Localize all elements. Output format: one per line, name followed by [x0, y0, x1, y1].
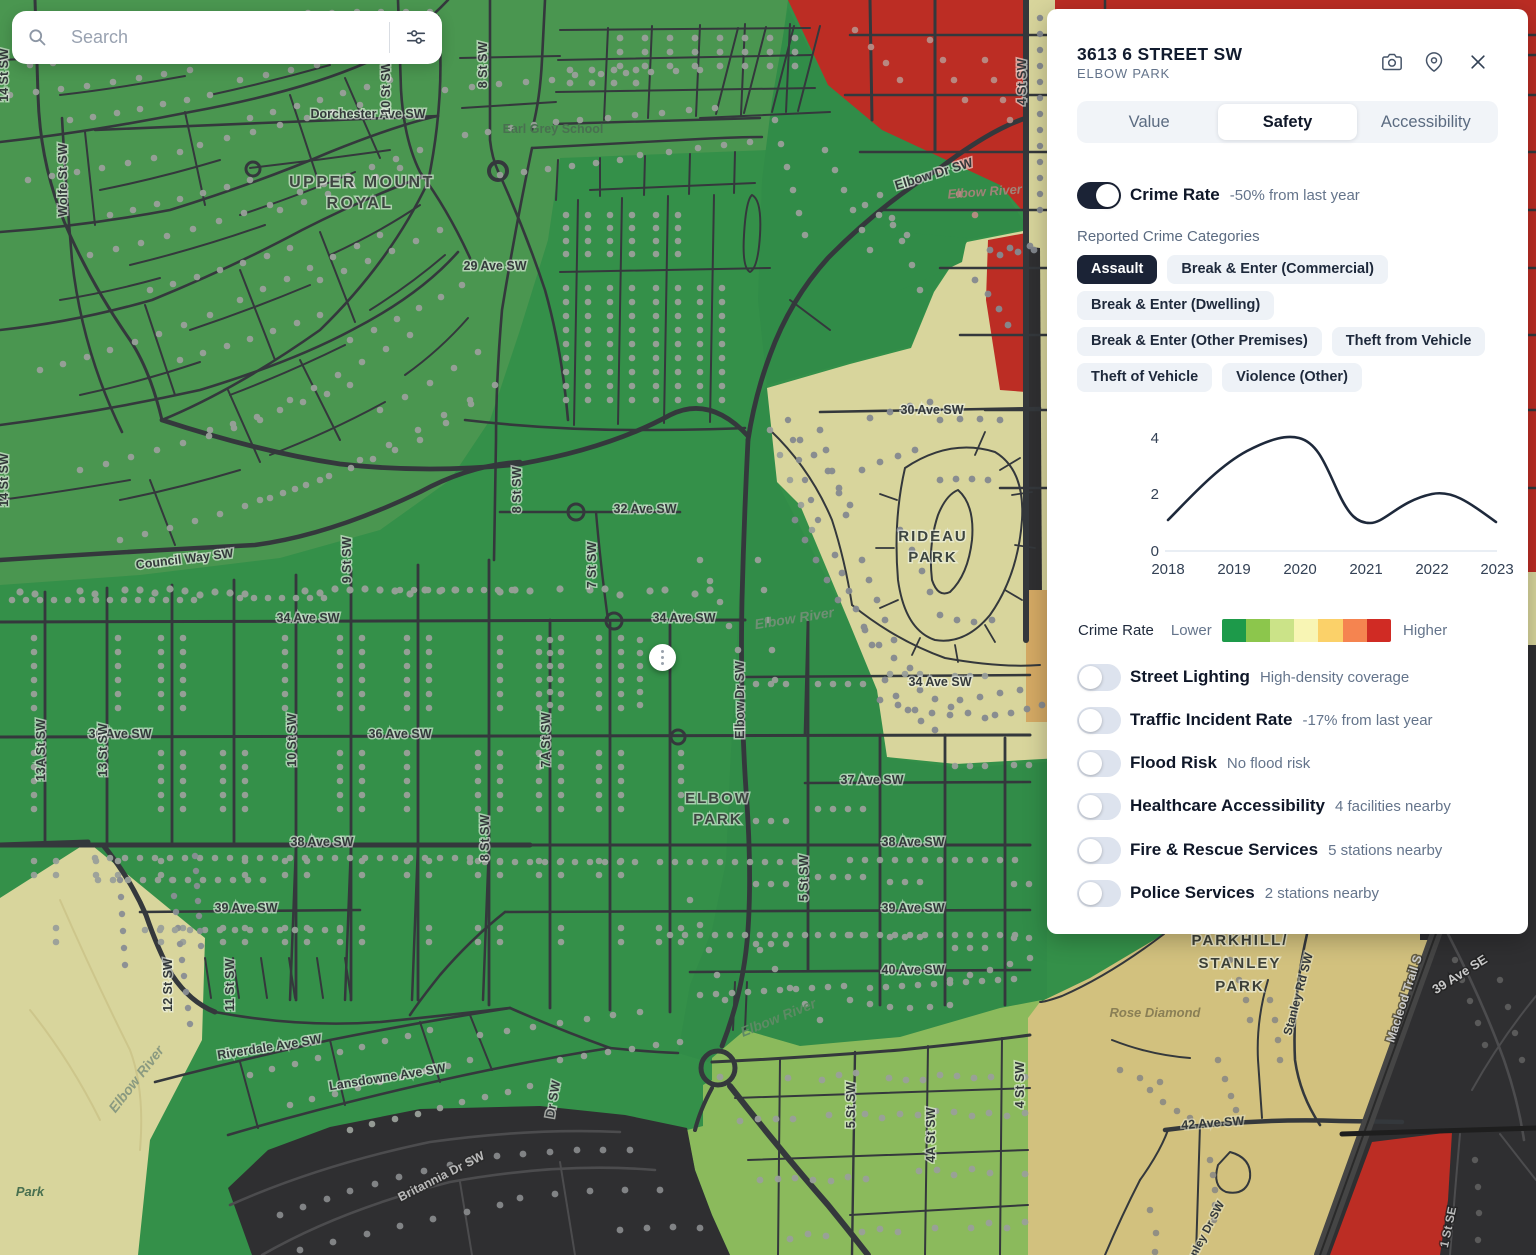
- svg-text:7A St SW: 7A St SW: [539, 712, 553, 767]
- svg-text:4: 4: [1151, 430, 1159, 447]
- svg-text:Rose Diamond: Rose Diamond: [1109, 1005, 1201, 1020]
- svg-text:5 St SW: 5 St SW: [797, 855, 811, 902]
- svg-text:ELBOW: ELBOW: [685, 790, 751, 807]
- svg-text:2018: 2018: [1151, 561, 1184, 578]
- svg-text:PARK: PARK: [693, 811, 742, 828]
- svg-text:13 St SW: 13 St SW: [96, 723, 110, 777]
- svg-text:2020: 2020: [1283, 561, 1316, 578]
- svg-text:39 Ave SW: 39 Ave SW: [215, 901, 278, 915]
- svg-text:STANLEY: STANLEY: [1199, 955, 1282, 972]
- svg-text:Elbow Dr SW: Elbow Dr SW: [733, 661, 747, 739]
- svg-text:40 Ave SW: 40 Ave SW: [882, 963, 945, 977]
- svg-text:10 St SW: 10 St SW: [379, 61, 393, 115]
- svg-text:8 St SW: 8 St SW: [510, 467, 524, 514]
- svg-text:4 St SW: 4 St SW: [1013, 1062, 1027, 1109]
- svg-text:13A St SW: 13A St SW: [34, 719, 48, 781]
- svg-text:RIDEAU: RIDEAU: [898, 528, 968, 545]
- svg-text:Park: Park: [16, 1184, 45, 1199]
- svg-text:9 St SW: 9 St SW: [340, 537, 354, 584]
- svg-text:36 Ave SW: 36 Ave SW: [369, 727, 432, 741]
- svg-text:2021: 2021: [1349, 561, 1382, 578]
- svg-text:7 St SW: 7 St SW: [585, 542, 599, 589]
- svg-text:Dorchester Ave SW: Dorchester Ave SW: [310, 107, 425, 121]
- svg-text:38 Ave SW: 38 Ave SW: [882, 835, 945, 849]
- svg-text:PARK: PARK: [908, 549, 957, 566]
- svg-text:34 Ave SW: 34 Ave SW: [909, 675, 972, 689]
- svg-text:12 St SW: 12 St SW: [161, 958, 175, 1012]
- svg-text:2022: 2022: [1415, 561, 1448, 578]
- svg-text:39 Ave SW: 39 Ave SW: [882, 901, 945, 915]
- svg-text:Earl Grey School: Earl Grey School: [503, 122, 604, 136]
- svg-text:Wolfe St SW: Wolfe St SW: [56, 143, 70, 217]
- svg-text:14 St SW: 14 St SW: [0, 453, 11, 507]
- svg-text:11 St SW: 11 St SW: [223, 958, 237, 1011]
- svg-text:PARKHILL/: PARKHILL/: [1192, 932, 1289, 949]
- svg-text:PARK: PARK: [1215, 978, 1264, 995]
- svg-text:14 St SW: 14 St SW: [0, 48, 11, 102]
- svg-text:32 Ave SW: 32 Ave SW: [614, 502, 677, 516]
- svg-text:29 Ave SW: 29 Ave SW: [464, 259, 527, 273]
- svg-text:34 Ave SW: 34 Ave SW: [277, 611, 340, 625]
- svg-text:2: 2: [1151, 486, 1159, 503]
- svg-text:10 St SW: 10 St SW: [285, 713, 299, 767]
- svg-text:38 Ave SW: 38 Ave SW: [291, 835, 354, 849]
- svg-text:0: 0: [1151, 543, 1159, 560]
- svg-text:37 Ave SW: 37 Ave SW: [841, 773, 904, 787]
- svg-text:8 St SW: 8 St SW: [476, 42, 490, 89]
- svg-text:2019: 2019: [1217, 561, 1250, 578]
- svg-text:2023: 2023: [1480, 561, 1513, 578]
- svg-text:4 St SW: 4 St SW: [1015, 59, 1029, 106]
- svg-text:34 Ave SW: 34 Ave SW: [653, 611, 716, 625]
- svg-text:UPPER MOUNT: UPPER MOUNT: [289, 174, 435, 191]
- svg-text:5 St SW: 5 St SW: [844, 1082, 858, 1129]
- svg-text:ROYAL: ROYAL: [326, 195, 393, 212]
- svg-text:30 Ave SW: 30 Ave SW: [901, 403, 964, 417]
- svg-text:8 St SW: 8 St SW: [478, 815, 492, 862]
- svg-text:4A St SW: 4A St SW: [924, 1107, 938, 1162]
